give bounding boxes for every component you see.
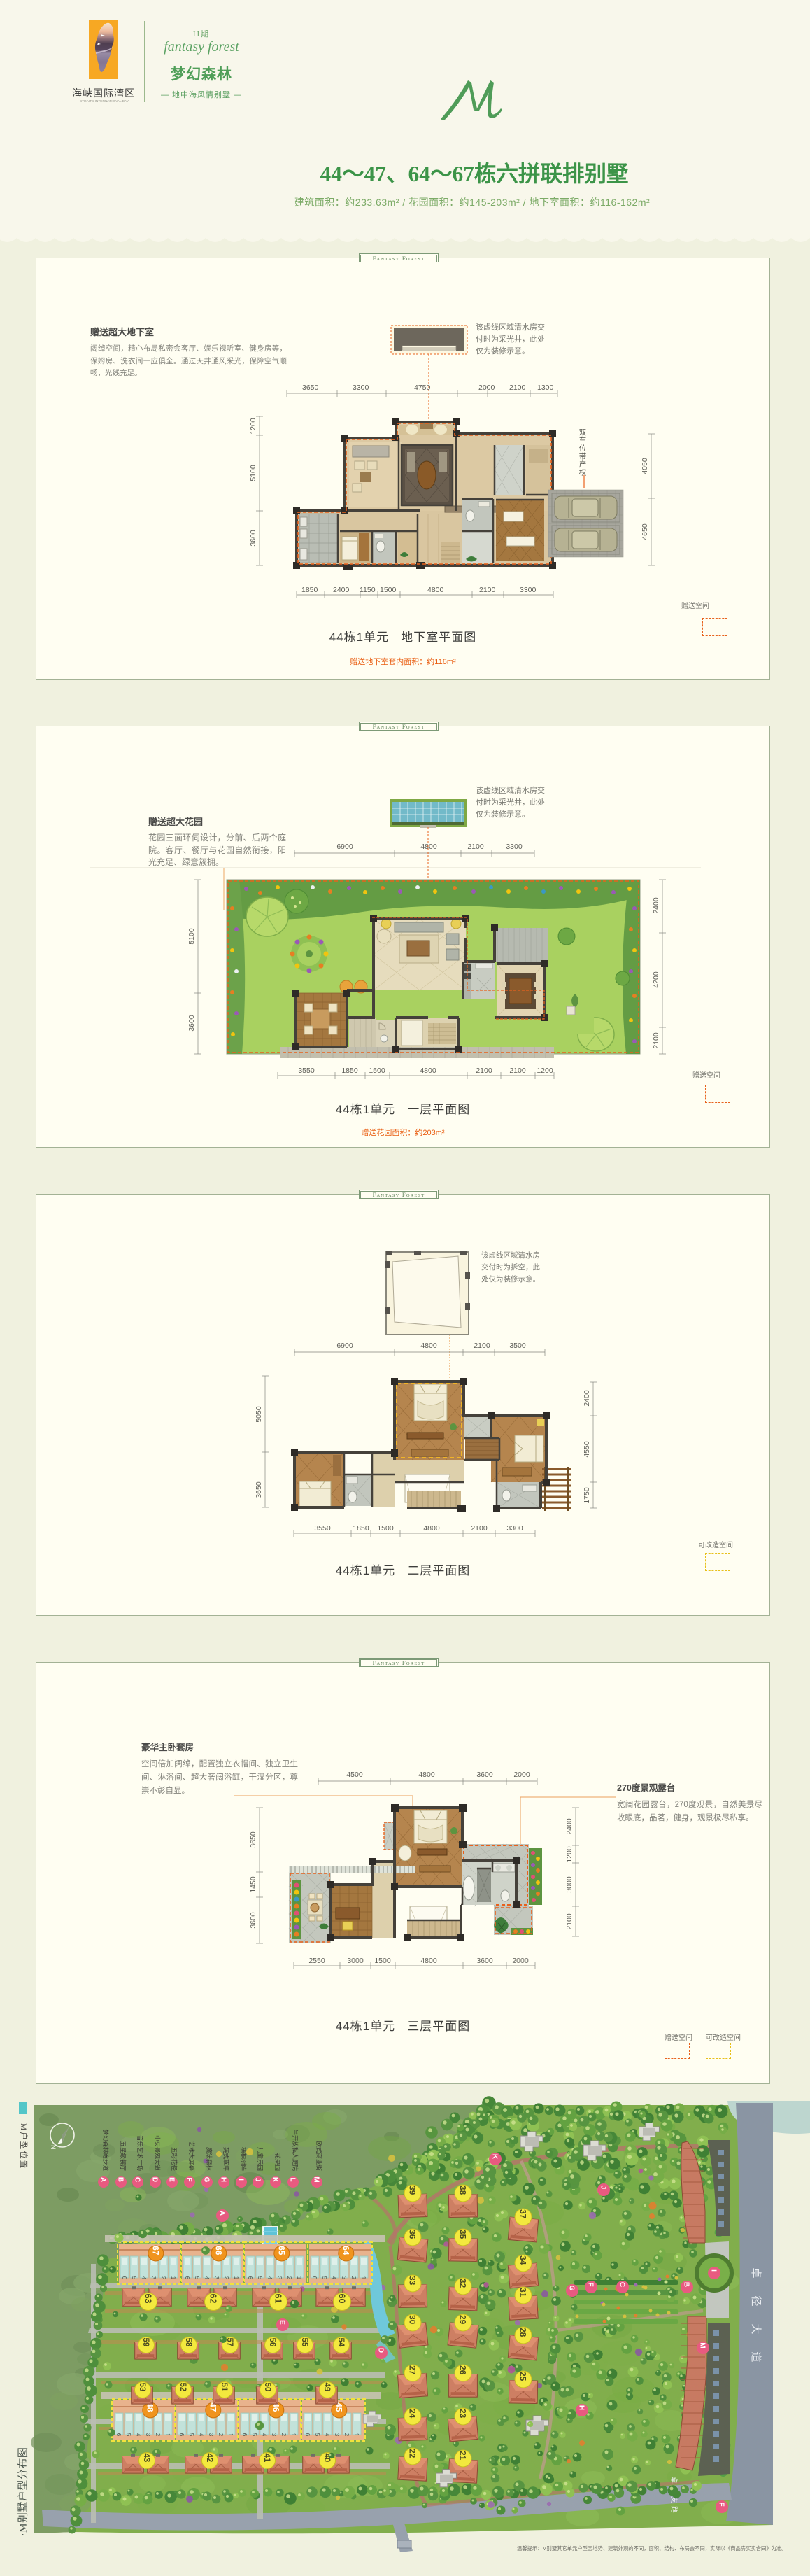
- svg-text:3: 3: [208, 2433, 214, 2437]
- svg-text:3: 3: [271, 2433, 277, 2437]
- svg-text:4: 4: [204, 2276, 210, 2280]
- svg-text:径: 径: [750, 2295, 762, 2306]
- svg-text:3650: 3650: [255, 1481, 263, 1498]
- svg-text:4800: 4800: [420, 1957, 437, 1965]
- svg-text:3600: 3600: [476, 1957, 493, 1965]
- svg-text:25: 25: [518, 2372, 528, 2381]
- svg-text:5: 5: [131, 2276, 137, 2280]
- svg-text:61: 61: [273, 2294, 283, 2304]
- svg-text:1: 1: [170, 2276, 176, 2280]
- svg-text:53: 53: [138, 2382, 146, 2391]
- svg-text:英式草坪: 英式草坪: [222, 2147, 229, 2172]
- svg-text:1500: 1500: [380, 586, 397, 594]
- svg-text:5100: 5100: [249, 465, 257, 481]
- svg-text:C: C: [134, 2177, 141, 2182]
- svg-text:39: 39: [408, 2186, 418, 2195]
- svg-text:65: 65: [277, 2246, 287, 2255]
- svg-text:4750: 4750: [414, 383, 431, 392]
- svg-text:4800: 4800: [423, 1524, 440, 1533]
- svg-text:33: 33: [408, 2276, 418, 2286]
- svg-text:3600: 3600: [476, 1771, 493, 1779]
- svg-text:30: 30: [408, 2315, 418, 2325]
- svg-text:3550: 3550: [298, 1067, 315, 1075]
- svg-text:F: F: [185, 2177, 193, 2181]
- svg-text:B: B: [683, 2282, 690, 2287]
- svg-text:43: 43: [142, 2453, 150, 2462]
- svg-text:付时为采光井，此处: 付时为采光井，此处: [476, 334, 545, 344]
- svg-text:2100: 2100: [467, 843, 484, 851]
- svg-text:6: 6: [311, 2276, 318, 2280]
- svg-text:6: 6: [178, 2433, 185, 2437]
- svg-text:E: E: [168, 2177, 176, 2182]
- svg-text:N: N: [50, 2145, 57, 2150]
- svg-text:大: 大: [750, 2323, 762, 2334]
- svg-text:双车位带产权: 双车位带产权: [579, 428, 587, 477]
- svg-text:花果园: 花果园: [274, 2153, 281, 2171]
- svg-text:5: 5: [314, 2433, 320, 2437]
- svg-text:67: 67: [151, 2246, 161, 2255]
- svg-text:66: 66: [214, 2246, 224, 2255]
- svg-text:3: 3: [334, 2433, 340, 2437]
- svg-text:4: 4: [261, 2433, 267, 2437]
- svg-text:42: 42: [205, 2453, 213, 2462]
- svg-text:3: 3: [150, 2276, 157, 2280]
- svg-text:22: 22: [408, 2449, 418, 2458]
- svg-text:H: H: [578, 2405, 585, 2410]
- svg-text:3300: 3300: [353, 383, 369, 392]
- svg-text:4050: 4050: [641, 458, 649, 474]
- svg-text:2100: 2100: [509, 383, 526, 392]
- svg-text:50: 50: [263, 2382, 271, 2391]
- svg-text:59: 59: [141, 2337, 150, 2346]
- svg-text:魔法森林: 魔法森林: [206, 2147, 213, 2172]
- svg-text:2100: 2100: [476, 1067, 492, 1075]
- svg-text:1450: 1450: [249, 1876, 257, 1893]
- svg-text:路: 路: [669, 2506, 678, 2513]
- svg-text:62: 62: [208, 2294, 218, 2304]
- svg-text:2000: 2000: [512, 1957, 529, 1965]
- svg-text:仅为装修示意。: 仅为装修示意。: [476, 809, 530, 819]
- svg-text:付时为采光井，此处: 付时为采光井，此处: [476, 797, 545, 807]
- svg-text:五星级餐厅: 五星级餐厅: [120, 2141, 127, 2171]
- svg-text:3000: 3000: [347, 1957, 364, 1965]
- svg-text:4500: 4500: [346, 1771, 363, 1779]
- svg-text:5: 5: [251, 2433, 257, 2437]
- svg-text:6: 6: [241, 2433, 248, 2437]
- svg-text:B: B: [117, 2177, 125, 2182]
- svg-text:34: 34: [518, 2255, 528, 2265]
- svg-text:2: 2: [223, 2276, 229, 2280]
- svg-text:6: 6: [121, 2276, 127, 2280]
- svg-text:2100: 2100: [479, 586, 496, 594]
- svg-text:1200: 1200: [537, 1067, 553, 1075]
- svg-text:5: 5: [194, 2276, 200, 2280]
- svg-text:儿童乐园: 儿童乐园: [257, 2147, 264, 2171]
- svg-text:4800: 4800: [418, 1771, 435, 1779]
- svg-text:M: M: [699, 2342, 706, 2348]
- svg-text:1500: 1500: [374, 1957, 391, 1965]
- svg-text:5100: 5100: [187, 928, 196, 945]
- svg-text:3: 3: [276, 2276, 283, 2280]
- svg-text:D: D: [151, 2177, 159, 2182]
- svg-text:5: 5: [125, 2433, 132, 2437]
- svg-text:3600: 3600: [187, 1015, 196, 1032]
- svg-text:4200: 4200: [652, 971, 660, 988]
- svg-text:3300: 3300: [506, 1524, 523, 1533]
- svg-text:4800: 4800: [420, 843, 437, 851]
- svg-text:H: H: [220, 2177, 227, 2182]
- svg-text:3500: 3500: [509, 1342, 526, 1350]
- svg-text:K: K: [271, 2177, 279, 2183]
- svg-text:31: 31: [518, 2288, 528, 2297]
- svg-text:仅为装修示意。: 仅为装修示意。: [476, 346, 530, 356]
- svg-text:51: 51: [220, 2382, 228, 2391]
- svg-text:5: 5: [321, 2276, 327, 2280]
- svg-text:2: 2: [218, 2433, 224, 2437]
- svg-text:56: 56: [268, 2337, 276, 2346]
- svg-text:该虚线区域清水房交: 该虚线区域清水房交: [476, 322, 545, 332]
- svg-text:49: 49: [322, 2382, 331, 2391]
- svg-text:J: J: [599, 2186, 607, 2190]
- svg-text:4: 4: [141, 2276, 147, 2280]
- svg-text:2: 2: [343, 2433, 350, 2437]
- svg-text:3: 3: [213, 2276, 220, 2280]
- svg-text:3600: 3600: [249, 1912, 257, 1929]
- svg-text:1: 1: [233, 2276, 239, 2280]
- svg-text:5: 5: [188, 2433, 194, 2437]
- svg-text:F: F: [587, 2282, 595, 2286]
- svg-text:1850: 1850: [301, 586, 318, 594]
- svg-text:2400: 2400: [652, 897, 660, 914]
- svg-text:A: A: [218, 2211, 226, 2216]
- svg-text:交付时为拆空，此: 交付时为拆空，此: [481, 1262, 540, 1272]
- svg-text:3: 3: [145, 2433, 151, 2437]
- svg-text:F: F: [718, 2502, 725, 2506]
- svg-text:58: 58: [184, 2337, 192, 2346]
- svg-text:37: 37: [518, 2209, 528, 2219]
- svg-text:1300: 1300: [537, 383, 554, 392]
- svg-text:I: I: [710, 2269, 718, 2272]
- svg-text:3: 3: [341, 2276, 347, 2280]
- svg-text:55: 55: [300, 2337, 308, 2346]
- svg-text:3600: 3600: [249, 530, 257, 547]
- svg-text:3650: 3650: [249, 1831, 257, 1848]
- svg-text:处仅为装修示意。: 处仅为装修示意。: [481, 1274, 540, 1283]
- svg-text:27: 27: [408, 2365, 418, 2375]
- svg-text:64: 64: [341, 2246, 351, 2255]
- svg-text:6: 6: [304, 2433, 311, 2437]
- svg-text:1150: 1150: [360, 586, 376, 594]
- svg-text:38: 38: [458, 2186, 468, 2195]
- svg-text:梦幻森林跑步道: 梦幻森林跑步道: [102, 2129, 109, 2171]
- svg-text:3300: 3300: [506, 843, 523, 851]
- svg-text:26: 26: [458, 2365, 468, 2375]
- svg-text:2550: 2550: [308, 1957, 325, 1965]
- svg-text:4: 4: [198, 2433, 204, 2437]
- svg-text:2: 2: [350, 2276, 357, 2280]
- svg-text:54: 54: [336, 2337, 345, 2346]
- svg-text:2: 2: [160, 2276, 166, 2280]
- svg-text:1: 1: [164, 2433, 171, 2437]
- svg-text:4: 4: [135, 2433, 141, 2437]
- svg-text:2100: 2100: [652, 1032, 660, 1049]
- svg-text:2100: 2100: [509, 1067, 526, 1075]
- svg-text:2100: 2100: [565, 1913, 574, 1930]
- svg-text:4: 4: [267, 2276, 273, 2280]
- svg-text:4800: 4800: [420, 1342, 437, 1350]
- svg-text:4800: 4800: [420, 1067, 436, 1075]
- svg-text:1500: 1500: [369, 1067, 385, 1075]
- svg-text:2400: 2400: [333, 586, 350, 594]
- svg-text:6900: 6900: [336, 1342, 353, 1350]
- svg-text:1500: 1500: [377, 1524, 394, 1533]
- svg-text:1: 1: [290, 2433, 297, 2437]
- svg-text:28: 28: [518, 2328, 528, 2337]
- svg-text:M: M: [313, 2176, 320, 2182]
- svg-text:6: 6: [184, 2276, 190, 2280]
- svg-text:63: 63: [143, 2294, 153, 2304]
- svg-text:4650: 4650: [641, 523, 649, 540]
- svg-text:J: J: [254, 2178, 262, 2182]
- svg-text:该虚线区域清水房交: 该虚线区域清水房交: [476, 785, 545, 795]
- svg-text:24: 24: [408, 2409, 418, 2419]
- svg-text:C: C: [618, 2282, 626, 2287]
- svg-text:4: 4: [331, 2276, 337, 2280]
- svg-text:1: 1: [227, 2433, 234, 2437]
- svg-text:A: A: [99, 2177, 107, 2182]
- svg-text:I: I: [237, 2179, 245, 2181]
- svg-text:2000: 2000: [513, 1771, 530, 1779]
- svg-text:32: 32: [458, 2279, 468, 2288]
- svg-text:21: 21: [458, 2451, 468, 2461]
- svg-text:52: 52: [178, 2382, 187, 2391]
- svg-text:1: 1: [296, 2276, 302, 2280]
- svg-text:5050: 5050: [255, 1406, 263, 1423]
- svg-text:卓: 卓: [750, 2267, 762, 2278]
- svg-text:2100: 2100: [471, 1524, 488, 1533]
- svg-text:2000: 2000: [478, 383, 495, 392]
- svg-text:5: 5: [257, 2276, 263, 2280]
- svg-text:6: 6: [115, 2433, 122, 2437]
- svg-text:1200: 1200: [565, 1846, 574, 1863]
- svg-text:1: 1: [353, 2433, 360, 2437]
- svg-text:L: L: [289, 2177, 297, 2181]
- svg-text:1: 1: [360, 2276, 367, 2280]
- svg-text:6: 6: [247, 2276, 253, 2280]
- svg-text:60: 60: [337, 2294, 347, 2304]
- svg-text:2: 2: [155, 2433, 161, 2437]
- svg-text:3300: 3300: [520, 586, 537, 594]
- svg-text:五彩花径: 五彩花径: [171, 2147, 178, 2172]
- svg-text:该虚线区域清水房: 该虚线区域清水房: [481, 1251, 540, 1260]
- svg-text:4: 4: [324, 2433, 330, 2437]
- svg-text:G: G: [568, 2286, 576, 2291]
- svg-text:3550: 3550: [314, 1524, 331, 1533]
- svg-text:G: G: [203, 2177, 211, 2183]
- svg-text:2400: 2400: [565, 1818, 574, 1835]
- svg-text:欧式商业街: 欧式商业街: [315, 2141, 322, 2171]
- svg-text:1200: 1200: [249, 418, 257, 435]
- svg-text:35: 35: [458, 2230, 468, 2239]
- svg-text:36: 36: [408, 2230, 418, 2239]
- svg-text:3000: 3000: [565, 1876, 574, 1893]
- svg-text:2: 2: [286, 2276, 292, 2280]
- svg-text:41: 41: [262, 2453, 271, 2462]
- svg-text:道: 道: [750, 2351, 762, 2362]
- svg-text:4550: 4550: [583, 1441, 591, 1458]
- svg-text:4800: 4800: [427, 586, 444, 594]
- svg-text:2: 2: [280, 2433, 287, 2437]
- svg-text:K: K: [491, 2154, 499, 2160]
- svg-text:1850: 1850: [353, 1524, 369, 1533]
- svg-text:2100: 2100: [474, 1342, 490, 1350]
- svg-text:6900: 6900: [336, 843, 353, 851]
- svg-text:2400: 2400: [583, 1390, 591, 1407]
- svg-text:1850: 1850: [341, 1067, 358, 1075]
- svg-text:艺术大屏幕: 艺术大屏幕: [188, 2141, 195, 2171]
- svg-text:E: E: [278, 2320, 286, 2325]
- svg-text:音乐艺术广场: 音乐艺术广场: [136, 2135, 143, 2171]
- svg-text:D: D: [377, 2348, 385, 2353]
- svg-text:23: 23: [458, 2409, 468, 2419]
- svg-text:1750: 1750: [583, 1487, 591, 1504]
- svg-text:中央景观大道: 中央景观大道: [154, 2135, 161, 2172]
- svg-text:梧桐树阵: 梧桐树阵: [240, 2147, 247, 2172]
- svg-text:半开放私人庭院: 半开放私人庭院: [292, 2129, 299, 2171]
- svg-text:29: 29: [458, 2315, 468, 2325]
- svg-text:3650: 3650: [302, 383, 319, 392]
